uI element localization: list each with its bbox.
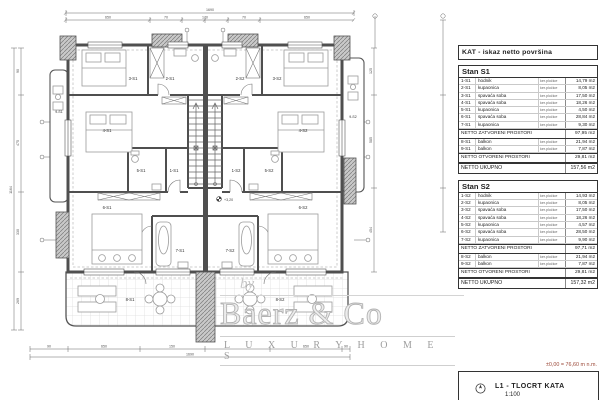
total-row: NETTO ZATVORENI PROSTORI97,71 m2 [459,244,597,254]
table-row: 2-S2kupaonicaker.pločice8,05 m2 [459,200,597,207]
table-row: 8-S2balkonker.pločice21,94 m2 [459,254,597,261]
room-area: 17,50 m2 [565,93,597,99]
room-name: hodnik [476,78,538,84]
room-label: 8-S1 [126,297,136,302]
total-row: NETTO ZATVORENI PROSTORI97,95 m2 [459,129,597,139]
room-code: 3-S2 [459,207,476,213]
floor-plan: 1690 650 70 170 70 650 90 650 150 650 90… [0,0,455,400]
room-name: balkon [476,146,538,152]
room-name: kupaonica [476,222,538,228]
room-area: 28,84 m2 [565,114,597,120]
room-name: kupaonica [476,122,538,128]
room-code: 6-S1 [459,114,476,120]
table-row: 3-S1spavaća sobaker.pločice17,50 m2 [459,93,597,100]
total-value: 29,81 m2 [565,154,597,162]
total-row: NETTO UKUPNO157,32 m2 [459,278,597,288]
room-code: 5-S2 [459,222,476,228]
section-title: Stan S1 [459,66,597,78]
room-name: kupaonica [476,200,538,206]
room-area: 7,87 m2 [565,261,597,267]
room-material: ker.pločice [538,237,565,243]
room-label: 9-S2 [349,115,356,119]
elevation-note: ±0,00 = 76,60 m n.m. [458,362,597,368]
table-row: 1-S1hodnikker.pločice14,79 m2 [459,78,597,85]
room-area: 8,05 m2 [565,85,597,91]
room-name: kupaonica [476,107,538,113]
room-code: 7-S1 [459,122,476,128]
room-area: 9,90 m2 [565,237,597,243]
dim-top-total: 1690 [206,8,214,12]
table-row: 4-S1spavaća sobaker.pločice18,26 m2 [459,100,597,107]
table-row: 4-S2spavaća sobaker.pločice18,26 m2 [459,215,597,222]
dim-top-seg: 170 [202,16,208,20]
title-block: L1 - TLOCRT KATA 1:100 [458,371,599,400]
room-area: 28,50 m2 [565,229,597,235]
room-material: ker.pločice [538,215,565,221]
room-label: 5-S1 [137,168,147,173]
room-area: 17,50 m2 [565,207,597,213]
room-area: 21,94 m2 [565,139,597,145]
room-material: ker.pločice [538,146,565,152]
room-label: 6-S1 [103,205,113,210]
room-code: 2-S1 [459,85,476,91]
room-code: 5-S1 [459,107,476,113]
total-label: NETTO ZATVORENI PROSTORI [459,245,565,253]
room-area: 8,05 m2 [565,200,597,206]
dim-top-seg: 70 [242,16,246,20]
room-label: 8-S2 [276,297,286,302]
room-label: 2-S2 [236,76,246,81]
room-material: ker.pločice [538,254,565,260]
room-name: spavaća soba [476,100,538,106]
room-label: 1-S1 [170,168,180,173]
table-row: 7-S1kupaonicaker.pločice9,30 m2 [459,122,597,129]
table-title: KAT - iskaz netto površina [458,45,598,60]
total-label: NETTO ZATVORENI PROSTORI [459,130,565,138]
room-code: 1-S1 [459,78,476,84]
table-row: 9-S1balkonker.pločice7,87 m2 [459,146,597,153]
table-row: 3-S2spavaća sobaker.pločice17,50 m2 [459,207,597,214]
room-area: 21,94 m2 [565,254,597,260]
room-code: 7-S2 [459,237,476,243]
room-area: 7,87 m2 [565,146,597,152]
sheet-scale: 1:100 [495,392,565,398]
room-material: ker.pločice [538,122,565,128]
total-label: NETTO OTVORENI PROSTORI [459,269,565,277]
room-name: balkon [476,139,538,145]
room-code: 8-S2 [459,254,476,260]
area-table-panel: KAT - iskaz netto površina Stan S11-S1ho… [458,45,598,295]
room-code: 3-S1 [459,93,476,99]
table-row: 2-S1kupaonicaker.pločice8,05 m2 [459,85,597,92]
room-area: 9,30 m2 [565,122,597,128]
room-label: 1-S2 [232,168,242,173]
table-row: 6-S1spavaća sobaker.pločice28,84 m2 [459,114,597,121]
dim-left-seg: 269 [16,298,20,304]
room-material: ker.pločice [538,139,565,145]
room-area: 18,26 m2 [565,215,597,221]
room-code: 9-S2 [459,261,476,267]
room-name: kupaonica [476,237,538,243]
dim-right-seg: 125 [369,68,373,74]
room-code: 9-S1 [459,146,476,152]
total-label: NETTO OTVORENI PROSTORI [459,154,565,162]
table-row: 8-S1balkonker.pločice21,94 m2 [459,139,597,146]
total-row: NETTO OTVORENI PROSTORI29,81 m2 [459,268,597,278]
room-name: spavaća soba [476,207,538,213]
drawing-sheet: 1690 650 70 170 70 650 90 650 150 650 90… [0,0,600,400]
total-value: 97,95 m2 [565,130,597,138]
dim-bottom-seg: 150 [169,344,175,348]
room-area: 18,26 m2 [565,100,597,106]
room-label: 5-S2 [265,168,275,173]
north-arrow-icon [475,383,486,394]
room-name: spavaća soba [476,229,538,235]
total-label: NETTO UKUPNO [459,279,565,288]
room-label: 4-S2 [299,128,309,133]
room-code: 2-S2 [459,200,476,206]
stan-section: Stan S11-S1hodnikker.pločice14,79 m22-S1… [458,65,598,174]
room-label: 3-S1 [129,76,139,81]
table-row: 5-S2kupaonicaker.pločice4,57 m2 [459,222,597,229]
section-title: Stan S2 [459,181,597,193]
total-value: 157,32 m2 [565,279,597,288]
room-label: 7-S2 [226,248,236,253]
total-label: NETTO UKUPNO [459,164,565,173]
sheet-title: L1 - TLOCRT KATA [495,383,565,390]
dim-bottom-seg: 650 [101,344,107,348]
room-material: ker.pločice [538,207,565,213]
dim-right-seg: 585 [369,137,373,143]
table-row: 7-S2kupaonicaker.pločice9,90 m2 [459,237,597,244]
room-label: 6-S2 [299,205,309,210]
room-material: ker.pločice [538,100,565,106]
room-material: ker.pločice [538,107,565,113]
room-code: 4-S1 [459,100,476,106]
room-name: spavaća soba [476,215,538,221]
table-row: 9-S2balkonker.pločice7,87 m2 [459,261,597,268]
total-row: NETTO UKUPNO157,56 m2 [459,163,597,173]
dim-left-seg: 90 [16,69,20,73]
room-area: 4,57 m2 [565,222,597,228]
room-material: ker.pločice [538,229,565,235]
level-marker-value: +3,20 [224,198,233,202]
room-label: 7-S1 [176,248,186,253]
room-area: 14,93 m2 [565,193,597,199]
room-material: ker.pločice [538,200,565,206]
room-material: ker.pločice [538,93,565,99]
dim-top-seg: 650 [304,16,310,20]
dim-left-total: 1164 [9,186,13,194]
total-value: 157,56 m2 [565,164,597,173]
room-area: 14,79 m2 [565,78,597,84]
room-code: 1-S2 [459,193,476,199]
dim-bottom-seg: 650 [303,344,309,348]
total-row: NETTO OTVORENI PROSTORI29,81 m2 [459,153,597,163]
room-name: spavaća soba [476,93,538,99]
dim-bottom-seg: 90 [344,344,348,348]
dim-right-seg: 454 [369,227,373,233]
total-value: 29,81 m2 [565,269,597,277]
room-material: ker.pločice [538,78,565,84]
room-area: 4,50 m2 [565,107,597,113]
dim-bottom-seg: 90 [47,344,51,348]
room-material: ker.pločice [538,222,565,228]
dim-top-seg: 650 [105,16,111,20]
room-name: hodnik [476,193,538,199]
area-sections: Stan S11-S1hodnikker.pločice14,79 m22-S1… [458,65,598,289]
room-material: ker.pločice [538,85,565,91]
room-material: ker.pločice [538,193,565,199]
dim-top-seg: 70 [164,16,168,20]
room-material: ker.pločice [538,261,565,267]
dim-bottom-total: 1690 [186,352,194,356]
room-code: 6-S2 [459,229,476,235]
table-row: 5-S1kupaonicaker.pločice4,50 m2 [459,107,597,114]
table-row: 6-S2spavaća sobaker.pločice28,50 m2 [459,229,597,236]
room-label: 4-S1 [103,128,113,133]
stan-section: Stan S21-S2hodnikker.pločice14,93 m22-S2… [458,180,598,289]
room-name: spavaća soba [476,114,538,120]
room-name: balkon [476,254,538,260]
total-value: 97,71 m2 [565,245,597,253]
room-label: 9-S1 [55,110,62,114]
room-name: balkon [476,261,538,267]
room-label: 3-S2 [273,76,283,81]
dim-left-seg: 330 [16,229,20,235]
room-material: ker.pločice [538,114,565,120]
room-label: 2-S1 [166,76,176,81]
room-name: kupaonica [476,85,538,91]
room-code: 4-S2 [459,215,476,221]
dim-left-seg: 475 [16,140,20,146]
room-code: 8-S1 [459,139,476,145]
table-row: 1-S2hodnikker.pločice14,93 m2 [459,193,597,200]
